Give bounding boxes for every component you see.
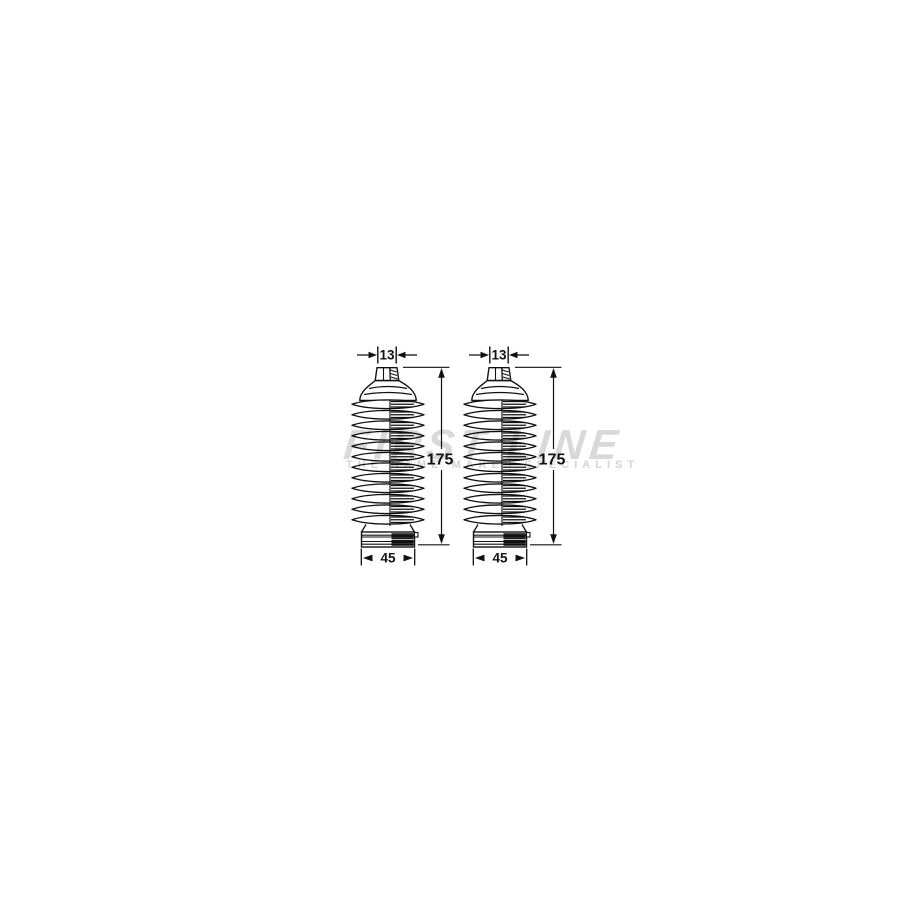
- boot-kit-diagram: 13 175 45 13 175 45: [0, 0, 915, 915]
- boot-left: [352, 368, 424, 547]
- base-width-label-right: 45: [492, 551, 508, 566]
- height-label-right: 175: [539, 452, 566, 469]
- top-width-label-left: 13: [379, 348, 395, 363]
- base-width-label-left: 45: [380, 551, 396, 566]
- boot-right: [464, 368, 536, 547]
- height-label-left: 175: [427, 452, 454, 469]
- product-image-canvas: 13 175 45 13 175 45 FIRST LINE THE NAME …: [0, 0, 915, 915]
- top-width-label-right: 13: [491, 348, 507, 363]
